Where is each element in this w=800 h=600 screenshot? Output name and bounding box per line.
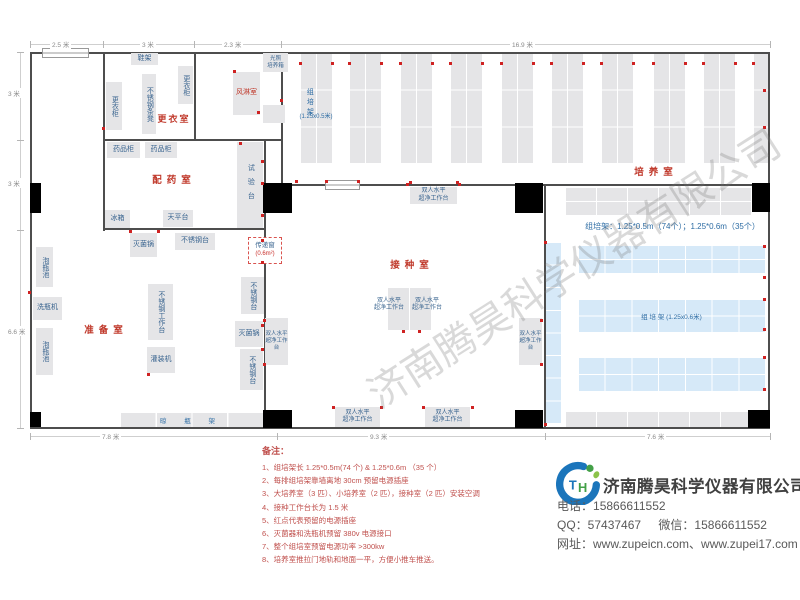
- power-outlet-dot: [763, 298, 766, 301]
- clean-bench-label-center-right: 双人水平 超净工作台: [407, 298, 447, 312]
- equipment-test-bench: 试验台: [237, 142, 263, 228]
- power-outlet-dot: [532, 62, 535, 65]
- equipment-sterilizer-1: 灭菌锅: [130, 233, 157, 257]
- power-outlet-dot: [431, 62, 434, 65]
- power-outlet-dot: [449, 62, 452, 65]
- dimension-label: 6.6 米: [6, 326, 27, 336]
- equipment-steel-table-2: 不锈钢台: [241, 277, 264, 314]
- dimension-tick: [770, 41, 771, 48]
- window-top-left: [42, 48, 89, 58]
- web-label: 网址：: [557, 537, 593, 551]
- rack-culture-rack-col-5: [501, 53, 533, 163]
- pillar: [515, 183, 543, 213]
- dimension-tick: [194, 41, 195, 48]
- wechat-value: 15866611552: [694, 518, 767, 532]
- dimension-label: 2.5 米: [50, 39, 71, 49]
- rack-column-size: (1.25x0.5米): [292, 114, 340, 121]
- power-outlet-dot: [261, 182, 264, 185]
- rack-culture-rack-col-2: [349, 53, 381, 163]
- power-outlet-dot: [261, 214, 264, 217]
- equipment-clean-bench-right: 双人水平 超净工作台: [519, 318, 542, 365]
- power-outlet-dot: [500, 62, 503, 65]
- note-item-4: 4、接种工作台长为 1.5 米: [262, 501, 480, 514]
- rack-culture-rack-col-9: [703, 53, 735, 163]
- dimension-label: 3 米: [140, 39, 156, 49]
- power-outlet-dot: [399, 62, 402, 65]
- note-item-1: 1、组培架长 1.25*0.5m(74 个) & 1.25*0.6m （35 个…: [262, 461, 480, 474]
- power-outlet-dot: [102, 127, 105, 130]
- rack-label-bottle-drying-rack: 晾 瓶 架: [120, 412, 263, 428]
- equipment-soak-pool-2: 泡瓶池: [36, 328, 53, 375]
- room-label-dressing: 更衣室: [152, 114, 196, 125]
- wall-outer-bottom: [30, 427, 770, 429]
- web-value: www.zupeicn.com、www.zupei17.com: [593, 537, 798, 551]
- company-qq-wechat-line: QQ：57437467 微信：15866611552: [557, 516, 767, 533]
- equipment-medicine-cabinet-2: 药品柜: [145, 142, 177, 158]
- dimension-tick: [17, 230, 24, 231]
- pillar: [30, 183, 41, 213]
- notes-title: 备注：: [262, 444, 480, 457]
- dimension-line-left: [20, 52, 21, 428]
- equipment-filling-machine: 灌装机: [147, 347, 175, 373]
- room-label-culture: 培养室: [628, 167, 684, 178]
- power-outlet-dot: [295, 180, 298, 183]
- power-outlet-dot: [261, 261, 264, 264]
- power-outlet-dot: [280, 99, 283, 102]
- wall-outer-right: [768, 52, 770, 429]
- dimension-label: 7.6 米: [645, 431, 666, 441]
- equipment-steel-bench-stool: 不锈钢条凳: [142, 74, 156, 134]
- power-outlet-dot: [147, 373, 150, 376]
- power-outlet-dot: [380, 62, 383, 65]
- power-outlet-dot: [348, 62, 351, 65]
- note-item-8: 8、培养室推拉门地轨和地面一平，方便小推车推送。: [262, 553, 480, 566]
- power-outlet-dot: [380, 406, 383, 409]
- power-outlet-dot: [357, 180, 360, 183]
- power-outlet-dot: [422, 406, 425, 409]
- note-item-6: 6、灭菌器和洗瓶机预留 380v 电源接口: [262, 527, 480, 540]
- rack-culture-rack-col-3: [400, 53, 432, 163]
- power-outlet-dot: [632, 62, 635, 65]
- company-name: 济南腾昊科学仪器有限公司: [603, 473, 800, 497]
- equipment-locker-left: 更衣柜: [106, 82, 122, 130]
- wall-dressing-left: [103, 52, 105, 231]
- dimension-tick: [30, 41, 31, 48]
- note-item-2: 2、每排组培架靠墙离地 30cm 预留电源插座: [262, 474, 480, 487]
- power-outlet-dot: [257, 111, 260, 114]
- dimension-tick: [281, 41, 282, 48]
- power-outlet-dot: [763, 388, 766, 391]
- rack-culture-rack-col-7: [601, 53, 633, 163]
- power-outlet-dot: [763, 328, 766, 331]
- dimension-label: 3 米: [6, 178, 22, 188]
- pass-through-label: 传递窗: [255, 242, 275, 250]
- qq-value: 57437467: [588, 518, 641, 532]
- power-outlet-dot: [652, 62, 655, 65]
- note-item-3: 3、大培养室（3 匹）、小培养室（2 匹），接种室（2 匹）安装空调: [262, 487, 480, 500]
- dimension-tick: [545, 433, 546, 440]
- rack-bottle-drying-rack: 晾 瓶 架: [120, 412, 263, 428]
- phone-label: 电话：: [557, 499, 593, 513]
- company-phone-line: 电话：15866611552: [557, 497, 666, 514]
- equipment-incubator-2: [263, 105, 285, 123]
- power-outlet-dot: [752, 62, 755, 65]
- equipment-shoe-rack: 鞋架: [131, 53, 158, 65]
- clean-bench-label-center-left: 双人水平 超净工作台: [369, 298, 409, 312]
- dimension-label: 3 米: [6, 88, 22, 98]
- power-outlet-dot: [261, 239, 264, 242]
- wall-pharmacy-bottom: [103, 228, 265, 230]
- dimension-tick: [17, 428, 24, 429]
- power-outlet-dot: [406, 183, 409, 186]
- notes-list: 1、组培架长 1.25*0.5m(74 个) & 1.25*0.6m （35 个…: [262, 461, 480, 567]
- power-outlet-dot: [263, 319, 266, 322]
- dimension-tick: [30, 433, 31, 440]
- pillar: [752, 183, 770, 212]
- power-outlet-dot: [763, 89, 766, 92]
- power-outlet-dot: [540, 363, 543, 366]
- rack-blue-rack-h2: 组 培 架 (1.25x0.6米): [578, 299, 765, 332]
- power-outlet-dot: [129, 230, 132, 233]
- qq-label: QQ：: [557, 518, 588, 532]
- equipment-light-incubator: 光照 培养箱: [263, 53, 288, 72]
- rack-blue-rack-h3: [578, 357, 765, 391]
- power-outlet-dot: [471, 406, 474, 409]
- rack-spec-label: 组培架：1.25*0.5m（74个）；1.25*0.6m（35个）: [570, 222, 775, 232]
- rack-culture-rack-col-6: [551, 53, 583, 163]
- power-outlet-dot: [261, 324, 264, 327]
- company-web-line: 网址：www.zupeicn.com、www.zupei17.com: [557, 535, 798, 552]
- power-outlet-dot: [332, 406, 335, 409]
- svg-text:T: T: [569, 477, 577, 492]
- power-outlet-dot: [582, 62, 585, 65]
- power-outlet-dot: [544, 241, 547, 244]
- power-outlet-dot: [481, 62, 484, 65]
- power-outlet-dot: [261, 160, 264, 163]
- power-outlet-dot: [702, 62, 705, 65]
- pillar: [515, 410, 543, 428]
- power-outlet-dot: [331, 62, 334, 65]
- rack-blue-rack-vertical: [545, 242, 561, 423]
- power-outlet-dot: [418, 330, 421, 333]
- power-outlet-dot: [409, 181, 412, 184]
- power-outlet-dot: [734, 62, 737, 65]
- pillar: [263, 410, 292, 428]
- equipment-air-shower-room: 风淋室: [233, 72, 260, 115]
- power-outlet-dot: [763, 126, 766, 129]
- power-outlet-dot: [263, 363, 266, 366]
- wall-dressing-airshower: [194, 52, 196, 141]
- equipment-steel-table-3: 不锈钢台: [240, 349, 263, 390]
- power-outlet-dot: [157, 230, 160, 233]
- power-outlet-dot: [550, 62, 553, 65]
- equipment-sterilizer-2: 灭菌锅: [235, 321, 263, 347]
- power-outlet-dot: [600, 62, 603, 65]
- pass-through-size: (0.6m²): [255, 251, 274, 259]
- equipment-fridge: 冰箱: [105, 210, 130, 228]
- equipment-locker-right: 更衣柜: [178, 66, 193, 104]
- note-item-5: 5、红点代表预留的电源插座: [262, 514, 480, 527]
- dimension-tick: [277, 433, 278, 440]
- floor-plan-canvas: 传递窗 (0.6m²) 济南腾昊科学仪器有限公司 晾 瓶 架组 培 架 (1.2…: [0, 0, 800, 600]
- pillar: [263, 183, 292, 213]
- power-outlet-dot: [684, 62, 687, 65]
- equipment-steel-table-1: 不锈钢台: [175, 233, 215, 250]
- power-outlet-dot: [299, 62, 302, 65]
- dimension-tick: [17, 140, 24, 141]
- dimension-tick: [103, 41, 104, 48]
- wall-dressing-bottom: [103, 139, 283, 141]
- door-inoculation-top: [325, 180, 360, 190]
- room-label-inoculation: 接种室: [384, 260, 440, 271]
- svg-text:H: H: [578, 480, 587, 495]
- equipment-clean-bench-bottom-2: 双人水平 超净工作台: [425, 407, 470, 427]
- dimension-tick: [17, 52, 24, 53]
- pillar: [748, 410, 770, 428]
- room-label-pharmacy: 配药室: [146, 175, 202, 186]
- wechat-label: 微信：: [658, 518, 694, 532]
- equipment-clean-bench-left: 双人水平 超净工作台: [265, 318, 288, 365]
- power-outlet-dot: [763, 276, 766, 279]
- equipment-clean-bench-top: 双人水平 超净工作台: [410, 187, 457, 204]
- power-outlet-dot: [233, 70, 236, 73]
- equipment-bottle-washer: 洗瓶机: [33, 297, 62, 320]
- phone-value: 15866611552: [593, 499, 666, 513]
- equipment-steel-workbench: 不锈钢工作台: [148, 284, 173, 340]
- power-outlet-dot: [763, 356, 766, 359]
- rack-rack-bottom-small-room: [565, 411, 751, 427]
- dimension-label: 2.3 米: [222, 39, 243, 49]
- rack-culture-rack-col-4: [450, 53, 482, 163]
- rack-label-blue-rack-h2: 组 培 架 (1.25x0.6米): [578, 299, 765, 332]
- dimension-label: 16.9 米: [510, 39, 535, 49]
- rack-blue-rack-h1: [578, 245, 765, 273]
- power-outlet-dot: [458, 183, 461, 186]
- dimension-label: 7.8 米: [100, 431, 121, 441]
- room-label-prep: 准备室: [78, 325, 134, 336]
- notes-block: 备注： 1、组培架长 1.25*0.5m(74 个) & 1.25*0.6m （…: [262, 444, 480, 567]
- wall-outer-left: [30, 52, 32, 429]
- pass-through-window: 传递窗 (0.6m²): [248, 237, 282, 264]
- equipment-clean-bench-bottom-1: 双人水平 超净工作台: [335, 407, 380, 427]
- equipment-soak-pool-1: 泡瓶池: [36, 247, 53, 287]
- power-outlet-dot: [763, 245, 766, 248]
- power-outlet-dot: [544, 423, 547, 426]
- wall-inoculation-smallroom: [544, 186, 546, 427]
- note-item-7: 7、整个组培室预留电源功率 >300kw: [262, 540, 480, 553]
- power-outlet-dot: [540, 319, 543, 322]
- power-outlet-dot: [325, 180, 328, 183]
- power-outlet-dot: [28, 291, 31, 294]
- pillar: [30, 412, 41, 427]
- power-outlet-dot: [239, 142, 242, 145]
- rack-culture-rack-col-8: [653, 53, 685, 163]
- rack-rack-top-small-room: [565, 187, 751, 215]
- power-outlet-dot: [402, 330, 405, 333]
- equipment-balance-table: 天平台: [163, 210, 193, 227]
- dimension-tick: [770, 433, 771, 440]
- equipment-medicine-cabinet-1: 药品柜: [107, 142, 140, 158]
- dimension-label: 9.3 米: [368, 431, 389, 441]
- power-outlet-dot: [261, 348, 264, 351]
